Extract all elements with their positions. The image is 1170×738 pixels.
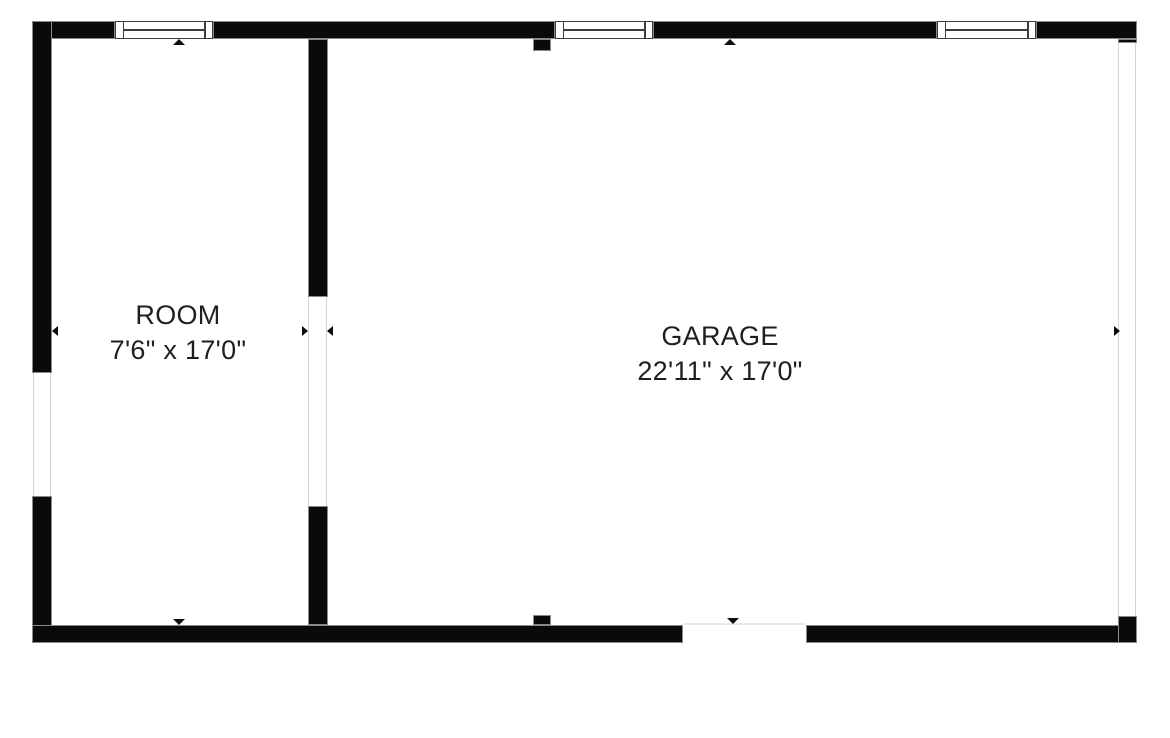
window-1-glass-line [124,29,204,31]
window-3-right-frame [1027,22,1029,38]
window-3-glass-line [946,29,1027,31]
window-2-icon [555,21,653,39]
garage-door-opening [683,623,806,625]
room-label: ROOM 7'6" x 17'0" [110,298,247,368]
interior-wall-upper [308,39,328,297]
window-1-right-frame [204,22,206,38]
right-wall-opening [1118,43,1136,616]
bottom-wall-stub [533,615,551,625]
room-top-marker-icon [173,39,185,45]
room-bottom-marker-icon [173,619,185,625]
garage-dimensions: 22'11" x 17'0" [637,354,802,389]
interior-wall-lower [308,506,328,625]
interior-wall-opening [308,297,327,506]
garage-name: GARAGE [637,319,802,354]
garage-top-marker-icon [724,39,736,45]
top-wall-segment-4 [1036,21,1137,39]
inner-wall-right-marker-icon [327,326,333,336]
top-wall-segment-2 [213,21,555,39]
window-1-icon [115,21,213,39]
room-dimensions: 7'6" x 17'0" [110,333,247,368]
garage-door-marker-icon [727,618,739,624]
floor-plan-canvas: ROOM 7'6" x 17'0" GARAGE 22'11" x 17'0" [0,0,1170,738]
left-wall-lower [32,496,52,643]
top-wall-segment-3 [653,21,937,39]
window-3-icon [937,21,1036,39]
room-name: ROOM [110,298,247,333]
bottom-wall-right-segment [806,625,1137,643]
left-wall-marker-icon [52,326,58,336]
bottom-wall-left-segment [32,625,683,643]
inner-wall-left-marker-icon [302,326,308,336]
left-wall-opening [33,373,51,496]
window-2-glass-line [564,29,644,31]
window-2-right-frame [644,22,646,38]
right-wall-bottom-stub [1118,616,1137,643]
right-wall-marker-icon [1114,326,1120,336]
top-wall-stub [533,39,551,51]
left-wall-upper [32,21,52,373]
garage-label: GARAGE 22'11" x 17'0" [637,319,802,389]
